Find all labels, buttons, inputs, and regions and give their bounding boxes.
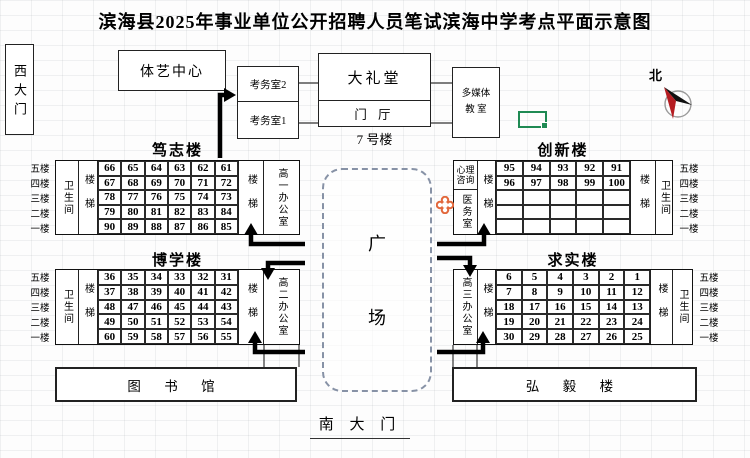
room-number-cell: 74 — [191, 190, 214, 205]
room-row: 363534333231 — [98, 270, 238, 285]
room-number-cell: 48 — [98, 300, 121, 315]
room-number-cell: 10 — [573, 285, 599, 300]
room-number-cell — [550, 205, 577, 220]
floor-label: 二楼 — [26, 315, 54, 330]
room-number-cell: 46 — [145, 300, 168, 315]
room-number-cell: 29 — [522, 329, 548, 344]
duzhi-floor-labels: 五楼四楼三楼二楼一楼 — [26, 160, 54, 235]
room-number-cell: 22 — [573, 314, 599, 329]
room-number-cell: 43 — [215, 300, 238, 315]
room-number-cell: 82 — [168, 205, 191, 220]
chuangxin-washroom: 卫生间 — [655, 161, 672, 234]
room-number-cell: 64 — [145, 161, 168, 176]
room-number-cell — [550, 190, 577, 205]
compass-icon — [658, 83, 696, 121]
room-number-cell: 70 — [168, 176, 191, 191]
floor-label: 三楼 — [26, 299, 54, 314]
room-number-cell: 90 — [98, 219, 121, 234]
room-number-cell: 42 — [215, 285, 238, 300]
room-row: 908988878685 — [98, 219, 238, 234]
boxue-building-title: 博学楼 — [55, 249, 300, 270]
room-number-cell: 51 — [145, 314, 168, 329]
room-number-cell — [576, 219, 603, 234]
duzhi-building: 卫生间 楼梯 666564636261676869707172787776757… — [55, 160, 300, 235]
qiushi-room-grid: 6543217891011121817161514131920212223243… — [496, 270, 650, 344]
room-number-cell: 57 — [168, 329, 191, 344]
room-number-cell: 72 — [215, 176, 238, 191]
floor-label: 四楼 — [695, 284, 723, 299]
floor-label: 三楼 — [695, 299, 723, 314]
room-number-cell: 50 — [121, 314, 144, 329]
hongyi-building: 弘 毅 楼 — [452, 367, 697, 402]
chuangxin-room-grid: 959493929196979899100 — [496, 161, 630, 234]
boxue-room-grid: 3635343332313738394041424847464544434950… — [98, 270, 238, 344]
floor-label: 四楼 — [675, 175, 703, 190]
room-row: 789101112 — [496, 285, 650, 300]
chuangxin-floor-labels: 五楼四楼三楼二楼一楼 — [675, 160, 703, 235]
west-gate-label: 西大门 — [5, 44, 34, 135]
room-number-cell: 38 — [121, 285, 144, 300]
sports-arts-center: 体艺中心 — [118, 50, 226, 91]
room-number-cell: 34 — [145, 270, 168, 285]
exam-office-2: 考务室2 — [237, 66, 299, 103]
floor-label: 四楼 — [26, 284, 54, 299]
page-title: 滨海县2025年事业单位公开招聘人员笔试滨海中学考点平面示意图 — [0, 8, 750, 34]
room-number-cell: 40 — [168, 285, 191, 300]
room-number-cell: 63 — [168, 161, 191, 176]
foyer: 门 厅 — [319, 101, 430, 126]
duzhi-stairs-right: 楼梯 — [238, 161, 263, 234]
room-number-cell: 58 — [145, 329, 168, 344]
boxue-stairs-left: 楼梯 — [79, 270, 98, 344]
room-number-cell: 6 — [496, 270, 522, 285]
room-number-cell — [603, 219, 630, 234]
room-row — [496, 205, 630, 220]
chuangxin-stairs-right: 楼梯 — [630, 161, 655, 234]
boxue-stairs-right: 楼梯 — [238, 270, 263, 344]
building-7-label: 7 号楼 — [318, 129, 431, 148]
room-row: 484746454443 — [98, 300, 238, 315]
chuangxin-left-column: 心理咨询 医务室 — [454, 161, 478, 234]
room-number-cell: 27 — [573, 329, 599, 344]
duzhi-washroom: 卫生间 — [56, 161, 79, 234]
chuangxin-stairs-left: 楼梯 — [478, 161, 496, 234]
room-number-cell: 52 — [168, 314, 191, 329]
room-row — [496, 190, 630, 205]
room-number-cell: 83 — [191, 205, 214, 220]
room-number-cell: 33 — [168, 270, 191, 285]
room-number-cell: 54 — [215, 314, 238, 329]
room-row: 192021222324 — [496, 314, 650, 329]
room-row: 605958575655 — [98, 329, 238, 344]
boxue-washroom: 卫生间 — [56, 270, 79, 344]
room-number-cell: 30 — [496, 329, 522, 344]
room-row: 181716151413 — [496, 300, 650, 315]
room-row: 96979899100 — [496, 176, 630, 191]
room-number-cell — [496, 205, 523, 220]
floor-label: 一楼 — [26, 220, 54, 235]
room-row: 787776757473 — [98, 190, 238, 205]
room-number-cell: 28 — [547, 329, 573, 344]
room-number-cell: 66 — [98, 161, 121, 176]
qiushi-office: 高三办公室 — [454, 270, 478, 344]
room-number-cell: 41 — [191, 285, 214, 300]
room-row: 495051525354 — [98, 314, 238, 329]
room-number-cell — [523, 205, 550, 220]
room-number-cell — [576, 190, 603, 205]
floor-label: 五楼 — [26, 269, 54, 284]
room-number-cell: 3 — [573, 270, 599, 285]
room-number-cell: 71 — [191, 176, 214, 191]
floor-label: 一楼 — [26, 330, 54, 345]
room-number-cell: 55 — [215, 329, 238, 344]
room-number-cell: 1 — [624, 270, 650, 285]
room-number-cell: 77 — [121, 190, 144, 205]
room-number-cell: 75 — [168, 190, 191, 205]
room-number-cell — [496, 219, 523, 234]
room-number-cell: 80 — [121, 205, 144, 220]
room-row: 302928272625 — [496, 329, 650, 344]
room-number-cell: 79 — [98, 205, 121, 220]
room-number-cell: 18 — [496, 300, 522, 315]
qiushi-stairs-right: 楼梯 — [650, 270, 672, 344]
floor-label: 五楼 — [675, 160, 703, 175]
room-number-cell: 5 — [522, 270, 548, 285]
room-number-cell: 100 — [603, 176, 630, 191]
qiushi-floor-labels: 五楼四楼三楼二楼一楼 — [695, 269, 723, 345]
room-number-cell: 67 — [98, 176, 121, 191]
room-number-cell: 69 — [145, 176, 168, 191]
multimedia-line1: 多媒体 — [462, 87, 491, 102]
plaza-char2: 场 — [368, 304, 386, 330]
room-number-cell: 91 — [603, 161, 630, 176]
room-number-cell: 25 — [624, 329, 650, 344]
room-number-cell: 15 — [573, 300, 599, 315]
library-building: 图 书 馆 — [55, 367, 297, 402]
room-number-cell: 2 — [599, 270, 625, 285]
room-number-cell: 32 — [191, 270, 214, 285]
floor-plan-canvas: 滨海县2025年事业单位公开招聘人员笔试滨海中学考点平面示意图 西大门 体艺中心… — [0, 0, 750, 458]
room-number-cell: 88 — [145, 219, 168, 234]
room-row: 798081828384 — [98, 205, 238, 220]
room-number-cell: 94 — [523, 161, 550, 176]
psych-counsel-room: 心理咨询 — [454, 161, 477, 190]
room-number-cell — [550, 219, 577, 234]
room-number-cell: 60 — [98, 329, 121, 344]
room-number-cell: 73 — [215, 190, 238, 205]
room-number-cell: 61 — [215, 161, 238, 176]
floor-label: 一楼 — [695, 330, 723, 345]
qiushi-building: 高三办公室 楼梯 6543217891011121817161514131920… — [453, 269, 693, 345]
room-number-cell: 92 — [576, 161, 603, 176]
room-number-cell: 23 — [599, 314, 625, 329]
room-number-cell: 98 — [550, 176, 577, 191]
room-number-cell — [603, 205, 630, 220]
room-number-cell: 44 — [191, 300, 214, 315]
room-number-cell: 49 — [98, 314, 121, 329]
room-number-cell: 11 — [599, 285, 625, 300]
qiushi-stairs-left: 楼梯 — [478, 270, 496, 344]
room-number-cell: 16 — [547, 300, 573, 315]
room-number-cell: 76 — [145, 190, 168, 205]
boxue-building: 卫生间 楼梯 363534333231373839404142484746454… — [55, 269, 300, 345]
room-number-cell: 62 — [191, 161, 214, 176]
boxue-office: 高二办公室 — [263, 270, 299, 344]
qiushi-washroom: 卫生间 — [672, 270, 692, 344]
room-number-cell: 24 — [624, 314, 650, 329]
boxue-floor-labels: 五楼四楼三楼二楼一楼 — [26, 269, 54, 345]
plaza-char1: 广 — [368, 230, 386, 256]
room-number-cell: 39 — [145, 285, 168, 300]
room-number-cell: 87 — [168, 219, 191, 234]
auditorium: 大礼堂 — [319, 54, 430, 101]
room-number-cell — [603, 190, 630, 205]
room-number-cell: 93 — [550, 161, 577, 176]
room-number-cell: 14 — [599, 300, 625, 315]
room-row: 676869707172 — [98, 176, 238, 191]
floor-label: 五楼 — [695, 269, 723, 284]
room-number-cell: 95 — [496, 161, 523, 176]
chuangxin-building-title: 创新楼 — [453, 139, 673, 160]
room-number-cell: 13 — [624, 300, 650, 315]
room-number-cell: 99 — [576, 176, 603, 191]
room-number-cell: 96 — [496, 176, 523, 191]
floor-label: 二楼 — [26, 205, 54, 220]
room-number-cell: 12 — [624, 285, 650, 300]
room-number-cell: 56 — [191, 329, 214, 344]
duzhi-room-grid: 6665646362616768697071727877767574737980… — [98, 161, 238, 234]
room-number-cell: 78 — [98, 190, 121, 205]
room-number-cell: 81 — [145, 205, 168, 220]
floor-label: 四楼 — [26, 175, 54, 190]
room-number-cell — [576, 205, 603, 220]
room-number-cell: 17 — [522, 300, 548, 315]
room-row — [496, 219, 630, 234]
room-number-cell: 7 — [496, 285, 522, 300]
room-row: 9594939291 — [496, 161, 630, 176]
room-number-cell: 19 — [496, 314, 522, 329]
room-number-cell: 47 — [121, 300, 144, 315]
room-number-cell: 53 — [191, 314, 214, 329]
room-number-cell: 4 — [547, 270, 573, 285]
duzhi-building-title: 笃志楼 — [55, 139, 300, 160]
room-number-cell — [496, 190, 523, 205]
plaza: 广 场 — [322, 168, 432, 392]
floor-label: 一楼 — [675, 220, 703, 235]
room-number-cell: 65 — [121, 161, 144, 176]
room-row: 666564636261 — [98, 161, 238, 176]
room-number-cell: 35 — [121, 270, 144, 285]
room-number-cell: 9 — [547, 285, 573, 300]
floor-label: 三楼 — [26, 190, 54, 205]
south-gate-label: 南 大 门 — [310, 413, 410, 439]
room-number-cell: 26 — [599, 329, 625, 344]
room-number-cell: 36 — [98, 270, 121, 285]
room-number-cell — [523, 190, 550, 205]
room-number-cell: 68 — [121, 176, 144, 191]
room-number-cell: 20 — [522, 314, 548, 329]
floor-label: 五楼 — [26, 160, 54, 175]
floor-label: 二楼 — [675, 205, 703, 220]
duzhi-stairs-left: 楼梯 — [79, 161, 98, 234]
room-number-cell: 31 — [215, 270, 238, 285]
qiushi-building-title: 求实楼 — [453, 249, 693, 270]
room-number-cell: 8 — [522, 285, 548, 300]
spreadsheet-selected-cell[interactable] — [518, 111, 547, 128]
floor-label: 三楼 — [675, 190, 703, 205]
room-row: 373839404142 — [98, 285, 238, 300]
multimedia-room: 多媒体 教 室 — [452, 67, 500, 138]
medical-room: 医务室 — [454, 190, 477, 234]
room-number-cell: 37 — [98, 285, 121, 300]
flower-marker-icon — [436, 196, 454, 214]
north-label: 北 — [649, 65, 662, 84]
room-number-cell: 97 — [523, 176, 550, 191]
building-7-block: 大礼堂 门 厅 — [318, 53, 431, 127]
duzhi-office: 高一办公室 — [263, 161, 299, 234]
room-number-cell: 85 — [215, 219, 238, 234]
room-row: 654321 — [496, 270, 650, 285]
floor-label: 二楼 — [695, 315, 723, 330]
room-number-cell: 86 — [191, 219, 214, 234]
room-number-cell: 59 — [121, 329, 144, 344]
room-number-cell: 89 — [121, 219, 144, 234]
multimedia-line2: 教 室 — [465, 103, 486, 118]
room-number-cell — [523, 219, 550, 234]
chuangxin-building: 心理咨询 医务室 楼梯 959493929196979899100 楼梯 卫生间 — [453, 160, 673, 235]
room-number-cell: 45 — [168, 300, 191, 315]
room-number-cell: 84 — [215, 205, 238, 220]
exam-office-1: 考务室1 — [237, 101, 299, 139]
room-number-cell: 21 — [547, 314, 573, 329]
